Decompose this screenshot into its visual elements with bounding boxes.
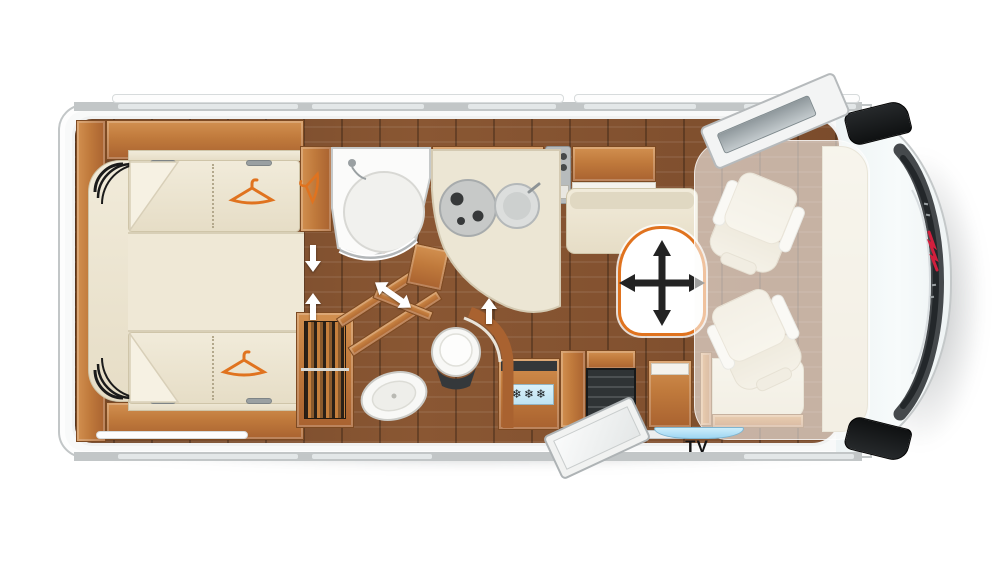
movable-table	[618, 226, 706, 336]
entry-side-cabinet	[586, 350, 636, 370]
wardrobe	[296, 312, 354, 428]
kitchen-shelf-edge	[432, 176, 544, 183]
bed-bottom-divider	[212, 336, 214, 400]
kitchen-wall-shelf	[432, 146, 544, 176]
bed-top-tab-2	[246, 160, 272, 166]
tv-cabinet	[648, 360, 692, 428]
window-bottom-3	[744, 454, 854, 459]
window-bottom-1	[118, 454, 298, 459]
entry-wood-column	[560, 350, 586, 428]
bed-bottom-tab-1	[150, 398, 176, 404]
floorplan-canvas: ❄❄❄	[0, 0, 1000, 563]
window-top-1	[118, 104, 298, 109]
bottle-1	[550, 153, 557, 160]
bottle-2	[560, 153, 567, 160]
window-top-3	[468, 104, 556, 109]
roof-rail-top-1	[112, 94, 564, 103]
tv-cabinet-top	[651, 363, 689, 375]
fridge-top-vent	[501, 361, 557, 371]
fridge: ❄❄❄	[498, 358, 560, 430]
twin-bed-top	[128, 160, 300, 232]
drop-down-bed-overlay	[694, 140, 870, 440]
bottle-3	[550, 164, 557, 171]
window-top-4	[584, 104, 696, 109]
window-top-2	[312, 104, 424, 109]
bedroom-wardrobe-top	[300, 146, 332, 232]
bed-center-section	[128, 232, 304, 332]
twin-bed-bottom	[128, 332, 300, 404]
dinette-wall-shelf	[572, 146, 656, 182]
bed-bottom-tab-2	[246, 398, 272, 404]
wardrobe-rail	[301, 368, 349, 371]
bed-top-tab-1	[150, 160, 176, 166]
bottle-4	[560, 164, 567, 171]
garage-door-strip	[96, 431, 248, 439]
dinette-backrest	[570, 192, 694, 209]
tv-label: TV	[672, 437, 722, 457]
bed-top-divider	[212, 164, 214, 228]
freezer-panel: ❄❄❄	[506, 384, 554, 405]
window-bottom-2	[312, 454, 432, 459]
